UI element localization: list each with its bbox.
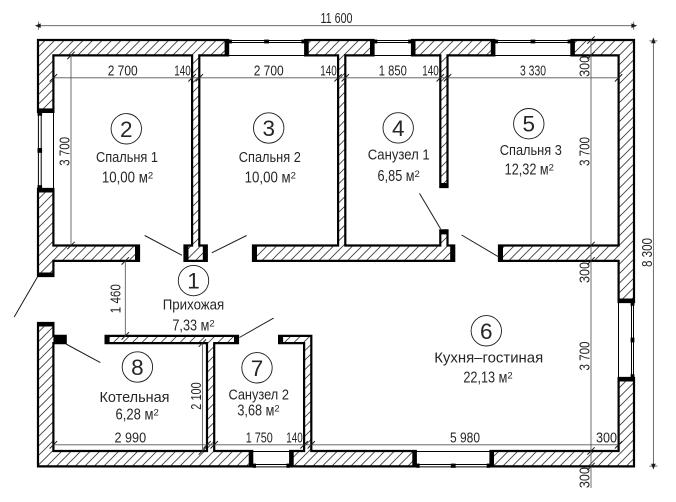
- svg-text:3,68 м2: 3,68 м2: [237, 403, 279, 420]
- svg-text:Спальня 3: Спальня 3: [500, 142, 562, 159]
- svg-text:6,28 м2: 6,28 м2: [115, 407, 158, 424]
- svg-text:Санузел 1: Санузел 1: [368, 147, 430, 164]
- svg-text:3 330: 3 330: [520, 63, 546, 79]
- svg-text:1 750: 1 750: [246, 430, 273, 446]
- svg-text:Спальня 1: Спальня 1: [96, 149, 158, 166]
- svg-text:300: 300: [578, 467, 594, 488]
- svg-text:300: 300: [578, 262, 594, 283]
- svg-text:7: 7: [251, 356, 264, 381]
- svg-text:Кухня–гостиная: Кухня–гостиная: [434, 350, 543, 367]
- svg-text:Спальня 2: Спальня 2: [239, 149, 301, 166]
- svg-text:3: 3: [262, 116, 275, 141]
- svg-text:8 300: 8 300: [640, 238, 656, 267]
- svg-text:300: 300: [596, 430, 617, 446]
- svg-text:1: 1: [187, 269, 200, 294]
- svg-text:2: 2: [120, 117, 133, 142]
- svg-text:140: 140: [320, 63, 337, 79]
- svg-text:2 700: 2 700: [254, 63, 284, 79]
- svg-text:10,00 м2: 10,00 м2: [245, 170, 296, 187]
- svg-text:12,32 м2: 12,32 м2: [505, 162, 554, 179]
- svg-text:3 700: 3 700: [578, 137, 594, 166]
- svg-text:22,13 м2: 22,13 м2: [463, 370, 512, 387]
- svg-text:140: 140: [174, 63, 191, 79]
- svg-text:140: 140: [422, 63, 439, 79]
- svg-text:4: 4: [392, 116, 405, 141]
- svg-text:8: 8: [131, 355, 144, 380]
- svg-text:6,85 м2: 6,85 м2: [378, 168, 420, 185]
- svg-text:300: 300: [578, 56, 594, 77]
- svg-text:Прихожая: Прихожая: [163, 297, 225, 314]
- svg-text:3 700: 3 700: [578, 341, 594, 370]
- svg-text:2 100: 2 100: [189, 382, 205, 409]
- svg-text:2 990: 2 990: [115, 430, 147, 446]
- svg-text:140: 140: [286, 430, 303, 446]
- svg-text:7,33 м2: 7,33 м2: [172, 318, 214, 335]
- svg-text:5: 5: [523, 112, 536, 137]
- svg-text:Котельная: Котельная: [100, 389, 170, 406]
- svg-text:11 600: 11 600: [321, 11, 353, 27]
- svg-text:1 850: 1 850: [379, 63, 407, 79]
- svg-text:1 460: 1 460: [109, 284, 125, 313]
- svg-text:Санузел 2: Санузел 2: [228, 387, 289, 404]
- svg-text:5 980: 5 980: [450, 430, 480, 446]
- svg-text:2 700: 2 700: [108, 63, 138, 79]
- svg-text:3 700: 3 700: [57, 137, 73, 166]
- svg-text:6: 6: [480, 319, 493, 344]
- svg-text:10,00 м2: 10,00 м2: [102, 170, 153, 187]
